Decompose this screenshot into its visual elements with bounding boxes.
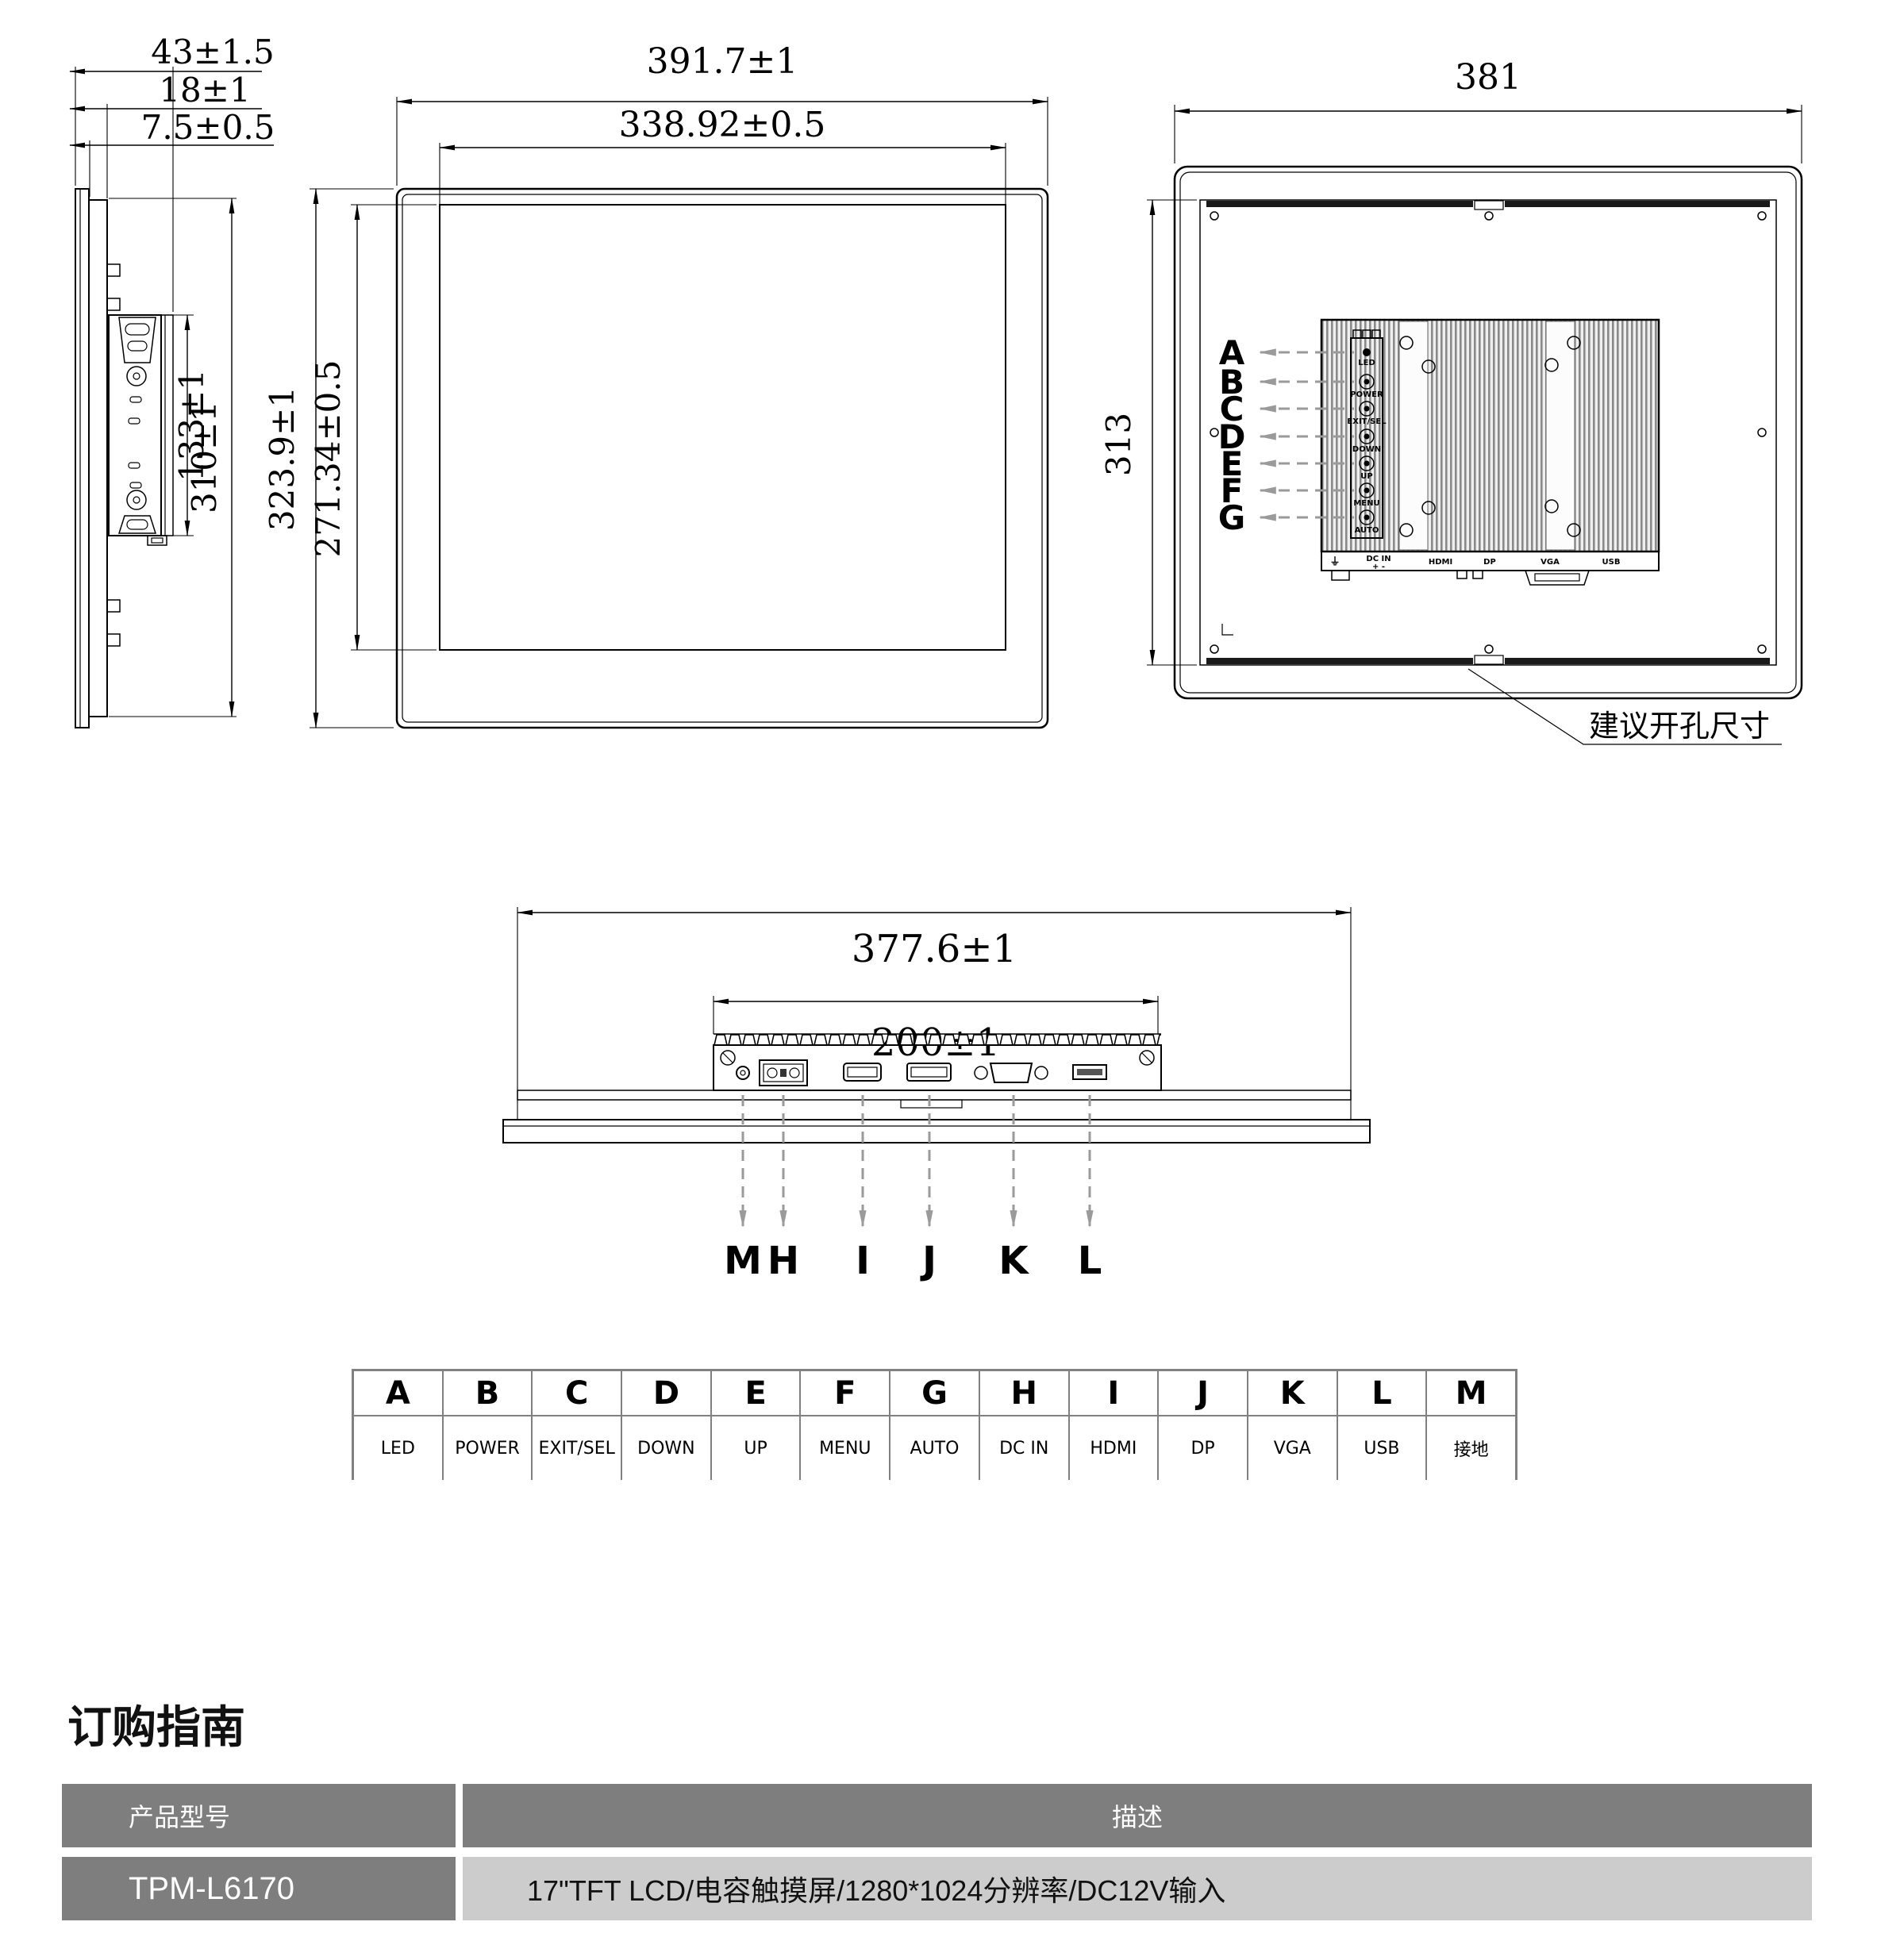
legend-label: HDMI bbox=[1070, 1416, 1158, 1480]
side-view: 43±1.5 18±1 7.5±0.5 bbox=[70, 33, 275, 728]
rear-view: 381 bbox=[1099, 57, 1802, 744]
bottom-port-usb-icon bbox=[1073, 1065, 1106, 1079]
port-label-hdmi: HDMI bbox=[1429, 558, 1452, 567]
legend-label: USB bbox=[1338, 1416, 1426, 1480]
cutout-note: 建议开孔尺寸 bbox=[1589, 709, 1770, 744]
callout-j: J bbox=[920, 1239, 937, 1283]
callout-l: L bbox=[1078, 1239, 1102, 1283]
ordering-data-row: TPM-L6170 17"TFT LCD/电容触摸屏/1280*1024分辨率/… bbox=[62, 1857, 1812, 1920]
drawing-canvas: 43±1.5 18±1 7.5±0.5 bbox=[0, 0, 1904, 1941]
dim-rear-width: 381 bbox=[1455, 57, 1521, 98]
legend-label: AUTO bbox=[890, 1416, 979, 1480]
legend-table: A B C D E F G H I J K L M LED POWER EXIT… bbox=[352, 1369, 1517, 1480]
callout-h: H bbox=[767, 1239, 799, 1283]
dim-rear-height: 313 bbox=[1099, 413, 1138, 476]
bottom-port-ground-icon bbox=[737, 1067, 749, 1079]
dim-outer-height: 323.9±1 bbox=[263, 386, 302, 531]
callout-m: M bbox=[724, 1239, 762, 1283]
led-indicator-icon bbox=[1363, 348, 1371, 356]
callout-i: I bbox=[856, 1239, 870, 1283]
dim-depth-total: 43±1.5 bbox=[151, 33, 274, 71]
ordering-col-desc-header: 描述 bbox=[463, 1784, 1812, 1847]
legend-label: EXIT/SEL bbox=[533, 1416, 621, 1480]
control-label-exit-sel: EXIT/SEL bbox=[1347, 417, 1387, 426]
control-label-menu: MENU bbox=[1353, 499, 1379, 508]
legend-header: F bbox=[801, 1371, 889, 1415]
technical-drawing-page: 43±1.5 18±1 7.5±0.5 bbox=[0, 0, 1904, 1941]
dim-screen-height: 271.34±0.5 bbox=[309, 360, 348, 558]
legend-header: E bbox=[712, 1371, 800, 1415]
control-label-power: POWER bbox=[1350, 390, 1383, 399]
callout-k: K bbox=[998, 1239, 1029, 1283]
legend-header: I bbox=[1070, 1371, 1158, 1415]
port-label-dp: DP bbox=[1483, 558, 1496, 567]
bottom-port-dcin-icon bbox=[760, 1060, 807, 1086]
legend-label: LED bbox=[354, 1416, 442, 1480]
legend-label: DC IN bbox=[980, 1416, 1068, 1480]
ordering-heading: 订购指南 bbox=[67, 1692, 245, 1756]
legend-header: H bbox=[980, 1371, 1068, 1415]
legend-header: J bbox=[1159, 1371, 1247, 1415]
legend-header: G bbox=[890, 1371, 979, 1415]
dim-body-height: 310±1 bbox=[185, 401, 224, 513]
port-label-vga: VGA bbox=[1541, 558, 1560, 567]
legend-label: 接地 bbox=[1427, 1416, 1515, 1480]
bottom-port-dp-icon bbox=[907, 1063, 951, 1081]
bottom-port-hdmi-icon bbox=[844, 1063, 881, 1081]
ground-icon: ⏚ bbox=[1329, 556, 1340, 568]
ordering-column-gap bbox=[456, 1784, 463, 1847]
bottom-port-vga-icon bbox=[975, 1063, 1048, 1082]
ordering-col-model-header: 产品型号 bbox=[62, 1784, 456, 1847]
rear-connector-strip: ⏚ DC IN + - HDMI DP VGA USB bbox=[1321, 552, 1659, 585]
legend-header: M bbox=[1427, 1371, 1515, 1415]
legend-header: C bbox=[533, 1371, 621, 1415]
legend-label: UP bbox=[712, 1416, 800, 1480]
callout-g: G bbox=[1218, 498, 1245, 537]
legend-label: DP bbox=[1159, 1416, 1247, 1480]
port-label-usb: USB bbox=[1602, 558, 1621, 567]
legend-header: K bbox=[1248, 1371, 1337, 1415]
ordering-header-row: 产品型号 描述 bbox=[62, 1784, 1812, 1847]
dim-depth-body: 18±1 bbox=[159, 71, 250, 110]
legend-label: DOWN bbox=[622, 1416, 710, 1480]
legend-header: D bbox=[622, 1371, 710, 1415]
control-label-down: DOWN bbox=[1352, 445, 1381, 454]
legend-header: L bbox=[1338, 1371, 1426, 1415]
dim-screen-width: 338.92±0.5 bbox=[619, 105, 826, 145]
dim-depth-front: 7.5±0.5 bbox=[141, 108, 275, 147]
ordering-model-value: TPM-L6170 bbox=[62, 1857, 456, 1920]
legend-label: MENU bbox=[801, 1416, 889, 1480]
legend-label: VGA bbox=[1248, 1416, 1337, 1480]
control-label-up: UP bbox=[1360, 472, 1372, 481]
ordering-column-gap bbox=[456, 1857, 463, 1920]
bottom-view: 377.6±1 200±1 bbox=[503, 907, 1370, 1283]
dim-outer-width: 391.7±1 bbox=[647, 41, 798, 82]
dim-bottom-outer: 377.6±1 bbox=[852, 927, 1017, 971]
ordering-description-value: 17"TFT LCD/电容触摸屏/1280*1024分辨率/DC12V输入 bbox=[463, 1857, 1812, 1920]
control-label-led: LED bbox=[1358, 359, 1375, 367]
control-label-auto: AUTO bbox=[1355, 526, 1379, 535]
legend-header: A bbox=[354, 1371, 442, 1415]
port-label-polarity: + - bbox=[1372, 563, 1385, 571]
legend-label: POWER bbox=[444, 1416, 532, 1480]
legend-header: B bbox=[444, 1371, 532, 1415]
front-view: 391.7±1 338.92±0.5 323.9±1 271.34±0.5 bbox=[263, 41, 1048, 728]
